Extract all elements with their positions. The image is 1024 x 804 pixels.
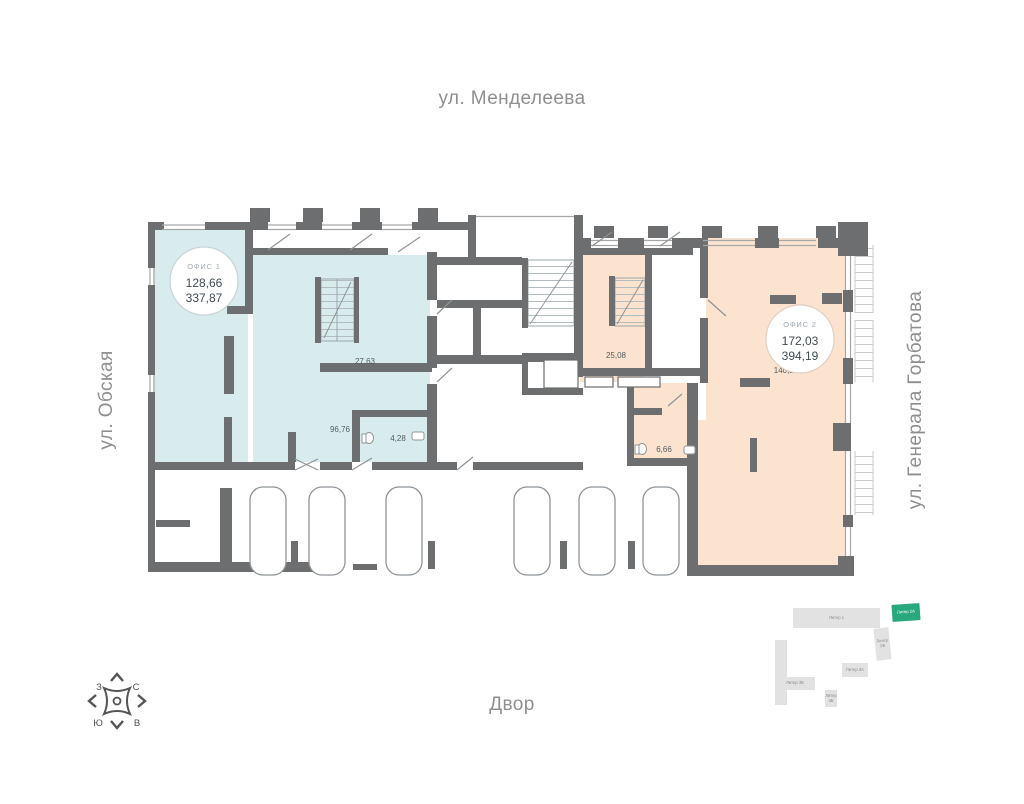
compass-star bbox=[104, 688, 130, 714]
floor-plan: 27,63 96,76 4,28 25,08 140,29 6,66 ОФИС … bbox=[0, 0, 1024, 804]
compass-south-label: Ю bbox=[93, 718, 103, 729]
car-outline bbox=[309, 487, 345, 575]
compass-center-ring bbox=[114, 698, 121, 705]
office1-area-value: 128,66 bbox=[186, 276, 223, 290]
room-area-office2-wc: 6,66 bbox=[656, 445, 672, 454]
room-area-office1-main: 96,76 bbox=[330, 425, 351, 434]
site-block-liter-2b[interactable]: Литер 2Б bbox=[873, 627, 891, 660]
office2-total-area-value: 394,19 bbox=[782, 349, 819, 363]
room-area-office1-hall: 27,63 bbox=[355, 357, 376, 366]
car-outline bbox=[579, 487, 615, 575]
site-block-liter-3b[interactable]: Литер 3Б bbox=[775, 677, 815, 690]
car-outline bbox=[643, 487, 679, 575]
car-outline bbox=[250, 487, 286, 575]
floorplan-page: ул. Менделеева ул. Обская ул. Генерала Г… bbox=[0, 0, 1024, 804]
compass-rose: З С Ю В bbox=[84, 668, 152, 736]
office1-badge[interactable]: ОФИС 1 128,66 337,87 bbox=[170, 247, 238, 315]
office2-badge[interactable]: ОФИС 2 172,03 394,19 bbox=[766, 305, 834, 373]
room-area-office1-wc: 4,28 bbox=[390, 434, 406, 443]
compass-north-label: С bbox=[133, 682, 140, 693]
site-block-liter-3a[interactable]: Литер 3А bbox=[842, 663, 868, 677]
office2-name: ОФИС 2 bbox=[783, 320, 816, 329]
office1-name: ОФИС 1 bbox=[187, 262, 220, 271]
office1-total-area-value: 337,87 bbox=[186, 291, 223, 305]
compass-east-label: В bbox=[134, 718, 140, 729]
compass-west-label: З bbox=[96, 682, 102, 693]
room-area-office2-hall: 25,08 bbox=[606, 351, 627, 360]
site-block-liter-2a[interactable]: Литер 2А bbox=[891, 603, 920, 622]
site-block-liter-1[interactable]: Литер 1 bbox=[793, 608, 880, 628]
car-outline bbox=[386, 487, 422, 575]
parking-cars bbox=[250, 487, 679, 575]
balcony-railing bbox=[855, 245, 873, 515]
car-outline bbox=[514, 487, 550, 575]
site-block-liter-4b[interactable]: Литер 4Б bbox=[825, 690, 837, 707]
site-block-liter-3b-wing[interactable] bbox=[775, 640, 787, 705]
office2-area-value: 172,03 bbox=[782, 334, 819, 348]
